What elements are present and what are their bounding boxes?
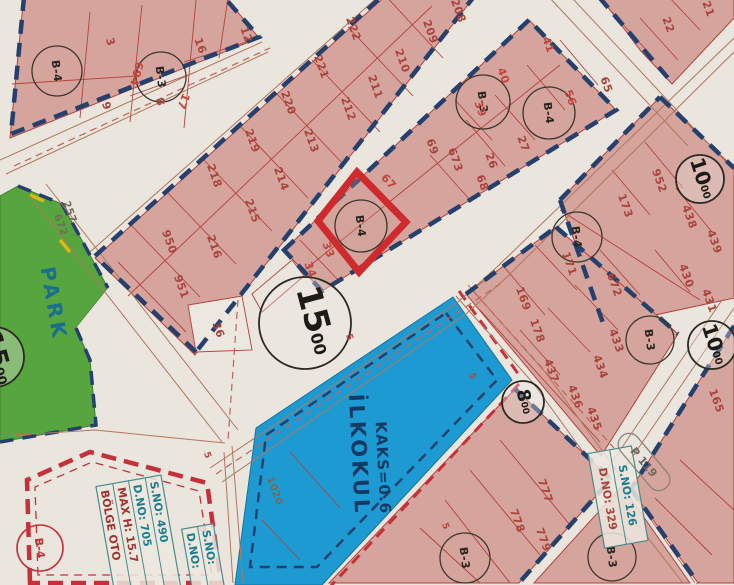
road-width-10-top: 1000 [676, 155, 724, 203]
block-label: B-3 [642, 328, 658, 352]
setback-dim: 5 [201, 451, 213, 460]
block-label: B-4 [49, 59, 65, 83]
block-label: B-4 [32, 537, 47, 559]
zoning-map: B-4 B-3 B-3 B-4 B-4 B-4 B-3 B-3 B-3 B-4 … [0, 0, 734, 585]
small-registry-box: S.NO: D.NO: [182, 524, 225, 585]
block-label: B-4 [353, 214, 369, 238]
block-label: B-3 [153, 65, 169, 89]
road-width-8-mid: 800 [502, 381, 544, 423]
block-label: B-3 [604, 545, 620, 569]
block-circle-b4-parking: B-4 [17, 525, 63, 571]
block-label: B-3 [457, 546, 473, 570]
road-width-15-main: 1500 [259, 277, 351, 369]
parcel-label-8: 8 [153, 96, 168, 108]
parking-registry-box: S.NO: 490 D.NO: 705 MAX H: 15.7 BÖLGE OT… [96, 475, 181, 585]
zoning-map-canvas: B-4 B-3 B-3 B-4 B-4 B-4 B-3 B-3 B-3 B-4 … [0, 0, 734, 585]
road-width-10-right: 1000 [688, 321, 734, 369]
block-label: B-4 [569, 225, 585, 249]
block-label: B-4 [541, 101, 557, 125]
